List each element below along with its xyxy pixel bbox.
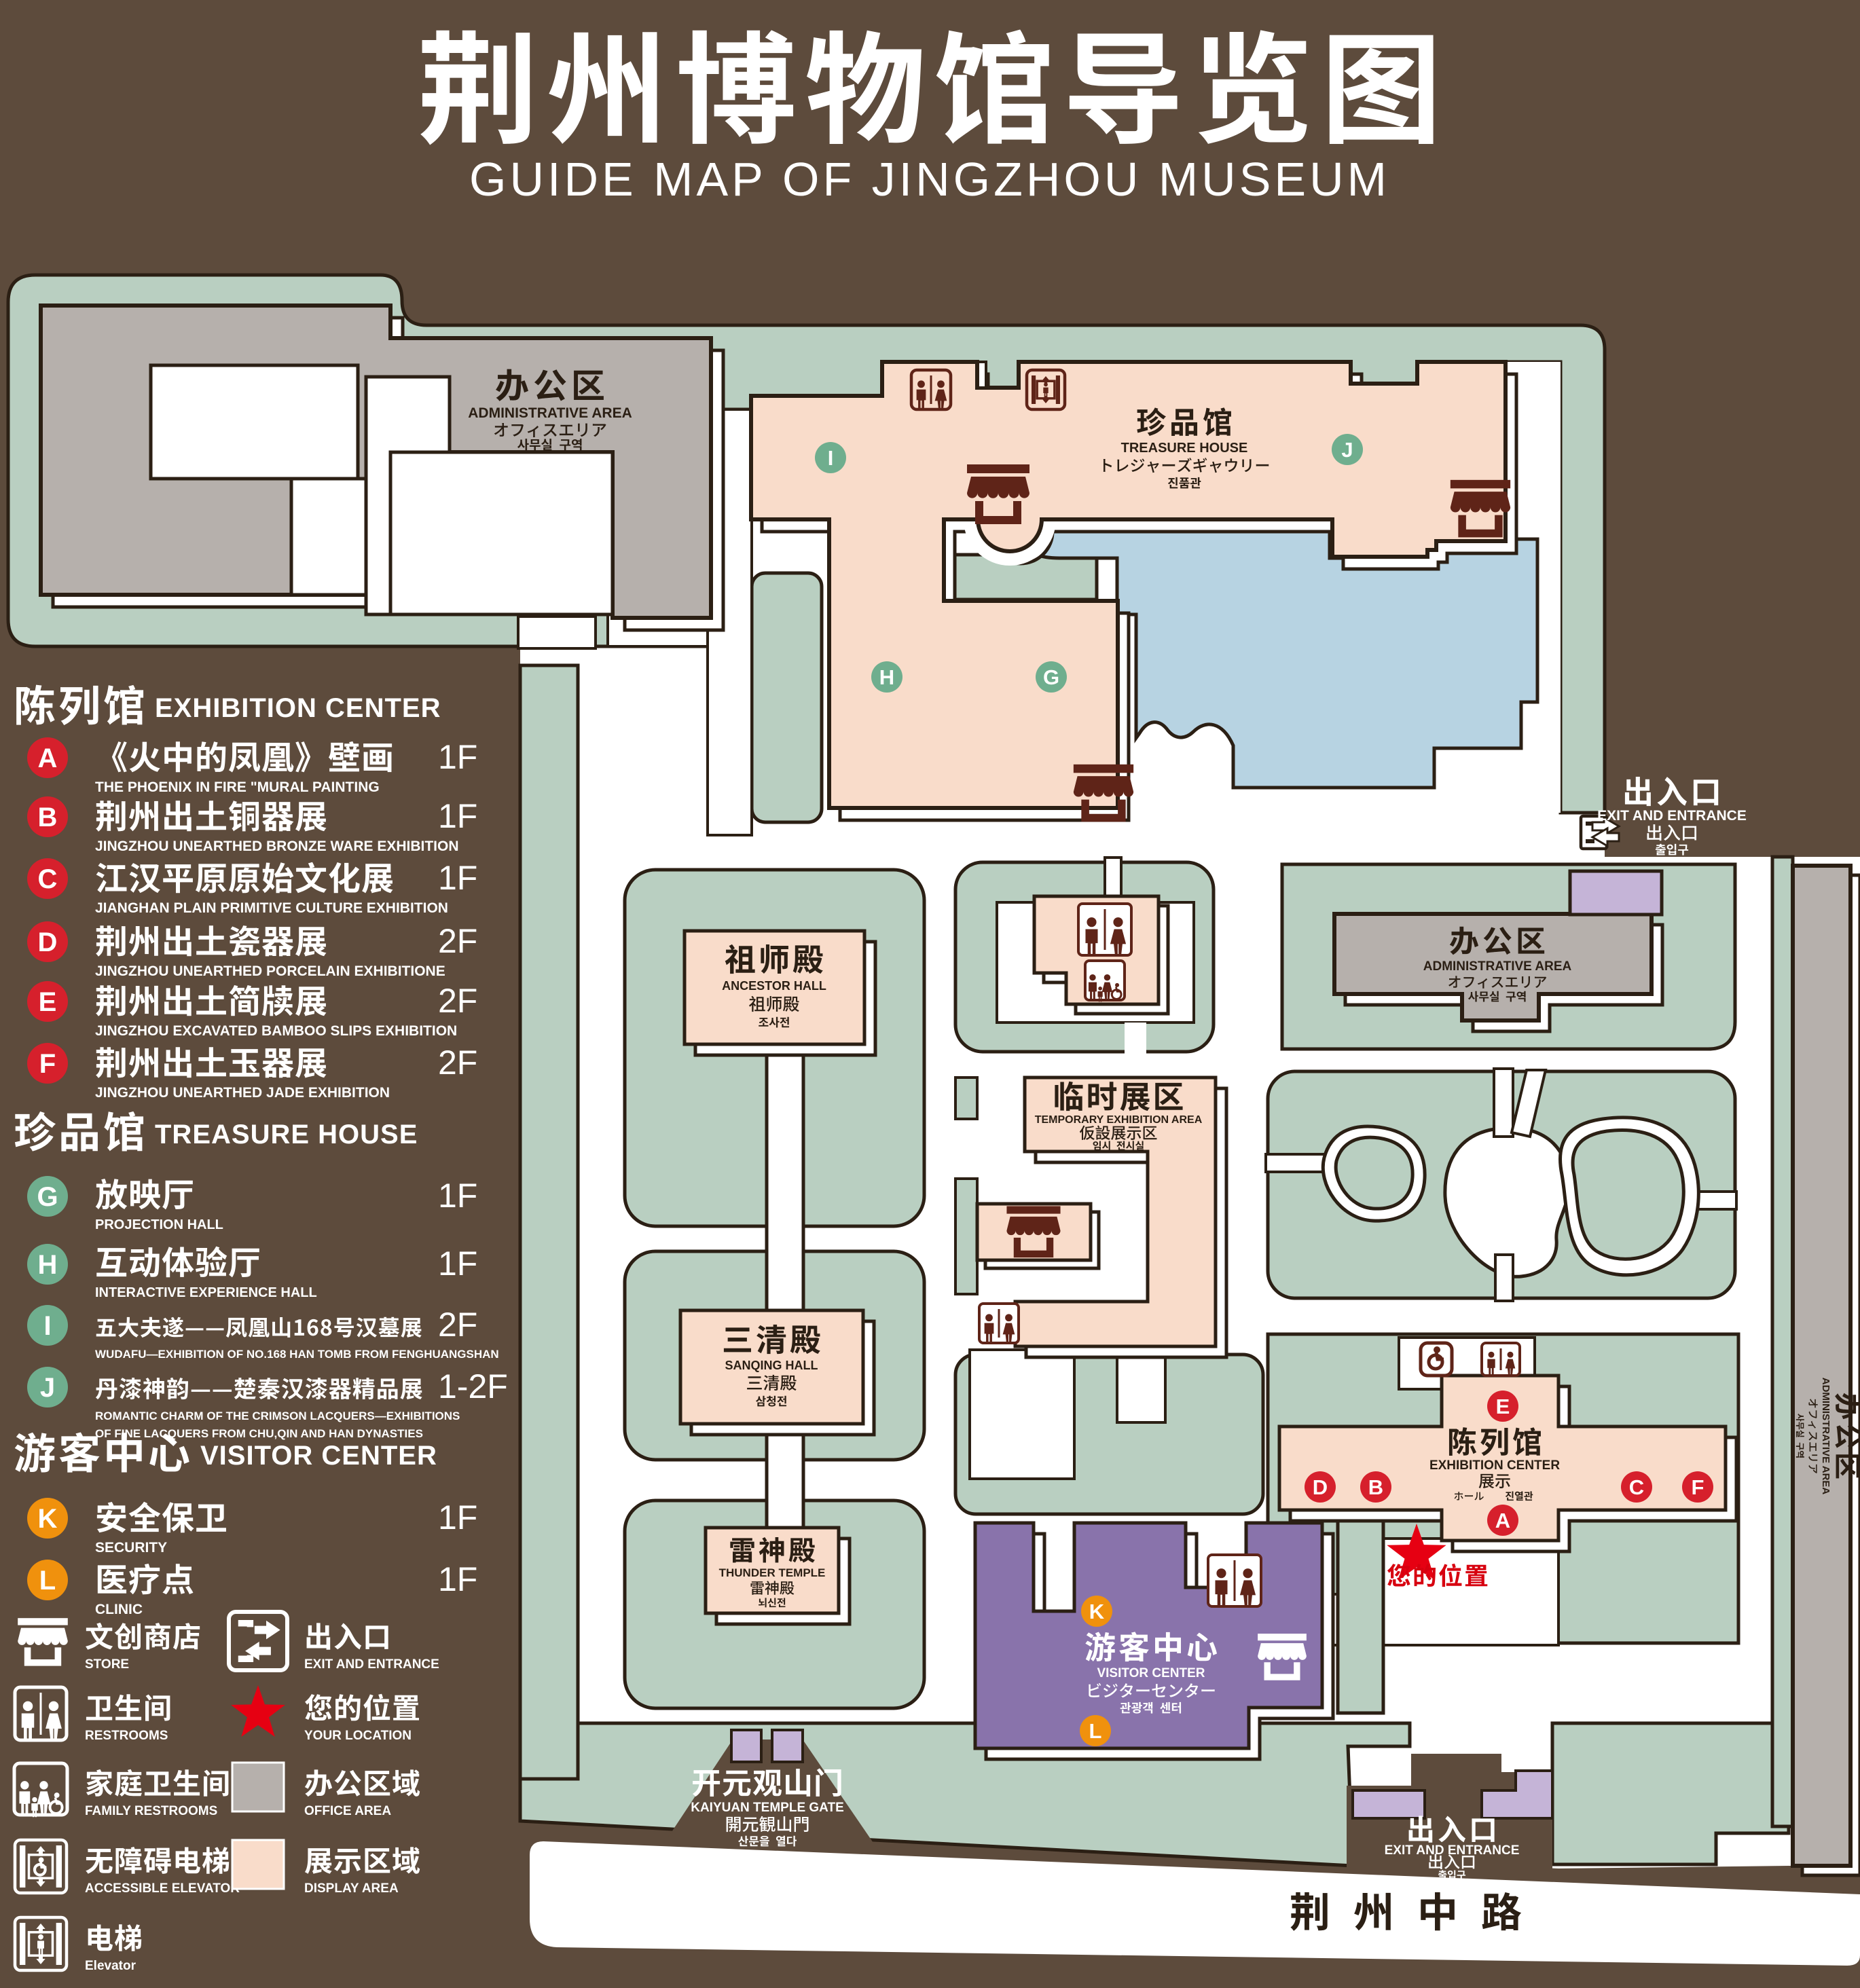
svg-text:RESTROOMS: RESTROOMS (85, 1729, 168, 1743)
svg-text:VISITOR CENTER: VISITOR CENTER (1097, 1666, 1205, 1680)
svg-text:SANQING HALL: SANQING HALL (725, 1359, 818, 1372)
svg-text:1-2F: 1-2F (438, 1367, 508, 1405)
svg-text:OFFICE AREA: OFFICE AREA (304, 1804, 391, 1818)
svg-text:TEMPORARY EXHIBITION AREA: TEMPORARY EXHIBITION AREA (1035, 1114, 1203, 1126)
svg-text:KAIYUAN TEMPLE GATE: KAIYUAN TEMPLE GATE (691, 1801, 844, 1815)
svg-text:1F: 1F (438, 1498, 477, 1536)
svg-text:ANCESTOR HALL: ANCESTOR HALL (722, 979, 826, 993)
svg-text:H: H (879, 665, 894, 689)
svg-text:ADMINISTRATIVE AREA: ADMINISTRATIVE AREA (1423, 959, 1572, 974)
svg-text:F: F (39, 1049, 56, 1079)
svg-text:SECURITY: SECURITY (95, 1540, 167, 1556)
svg-text:1F: 1F (438, 1245, 477, 1283)
svg-text:J: J (1341, 438, 1353, 462)
svg-text:OF FINE LACQUERS FROM CHU,QIN: OF FINE LACQUERS FROM CHU,QIN AND HAN DY… (95, 1427, 423, 1440)
svg-text:TREASURE HOUSE: TREASURE HOUSE (155, 1120, 418, 1149)
svg-text:B: B (38, 803, 58, 832)
svg-text:I: I (828, 446, 834, 470)
svg-text:1F: 1F (438, 859, 477, 897)
svg-text:GUIDE MAP OF JINGZHOU MUSEUM: GUIDE MAP OF JINGZHOU MUSEUM (469, 153, 1390, 206)
svg-text:EXHIBITION CENTER: EXHIBITION CENTER (1429, 1458, 1560, 1473)
svg-text:VISITOR CENTER: VISITOR CENTER (200, 1441, 437, 1471)
svg-text:H: H (38, 1250, 58, 1280)
svg-text:ADMINISTRATIVE AREA: ADMINISTRATIVE AREA (468, 405, 632, 421)
svg-text:JINGZHOU EXCAVATED BAMBOO SLIP: JINGZHOU EXCAVATED BAMBOO SLIPS EXHIBITI… (95, 1023, 457, 1039)
svg-text:B: B (1368, 1475, 1383, 1499)
svg-text:E: E (1496, 1395, 1510, 1418)
svg-text:TREASURE HOUSE: TREASURE HOUSE (1121, 441, 1248, 456)
svg-text:ACCESSIBLE ELEVATOR: ACCESSIBLE ELEVATOR (85, 1881, 240, 1896)
svg-text:J: J (40, 1373, 55, 1403)
svg-text:THUNDER TEMPLE: THUNDER TEMPLE (719, 1566, 826, 1579)
svg-text:D: D (1313, 1475, 1328, 1499)
svg-text:G: G (37, 1182, 58, 1212)
svg-text:2F: 2F (438, 1044, 477, 1082)
svg-text:THE PHOENIX IN FIRE "MURAL PAI: THE PHOENIX IN FIRE "MURAL PAINTING (95, 779, 380, 795)
svg-text:L: L (1089, 1719, 1102, 1743)
svg-text:JINGZHOU UNEARTHED JADE EXHIBI: JINGZHOU UNEARTHED JADE EXHIBITION (95, 1085, 390, 1101)
svg-text:ADMINISTRATIVE AREA: ADMINISTRATIVE AREA (1820, 1378, 1831, 1495)
svg-text:2F: 2F (438, 982, 477, 1020)
svg-text:A: A (1495, 1509, 1510, 1532)
svg-text:C: C (1629, 1475, 1644, 1499)
svg-text:DISPLAY AREA: DISPLAY AREA (304, 1881, 399, 1896)
svg-text:PROJECTION HALL: PROJECTION HALL (95, 1217, 223, 1232)
svg-text:EXIT AND ENTRANCE: EXIT AND ENTRANCE (1385, 1843, 1520, 1858)
svg-text:CLINIC: CLINIC (95, 1602, 143, 1617)
svg-text:INTERACTIVE EXPERIENCE HALL: INTERACTIVE EXPERIENCE HALL (95, 1285, 317, 1300)
svg-text:YOUR LOCATION: YOUR LOCATION (304, 1729, 412, 1743)
svg-text:2F: 2F (438, 1306, 477, 1344)
svg-text:EXIT AND ENTRANCE: EXIT AND ENTRANCE (1597, 808, 1747, 824)
svg-text:F: F (1692, 1475, 1704, 1499)
svg-text:K: K (38, 1504, 58, 1534)
svg-text:G: G (1043, 665, 1059, 689)
svg-text:FAMILY RESTROOMS: FAMILY RESTROOMS (85, 1804, 217, 1818)
svg-text:A: A (38, 743, 58, 773)
svg-text:1F: 1F (438, 1560, 477, 1598)
svg-text:L: L (39, 1566, 56, 1596)
svg-text:1F: 1F (438, 797, 477, 835)
svg-text:I: I (43, 1311, 51, 1341)
svg-text:STORE: STORE (85, 1657, 129, 1672)
svg-text:C: C (38, 864, 58, 894)
svg-text:D: D (38, 927, 58, 957)
svg-text:ROMANTIC CHARM OF THE CRIMSON: ROMANTIC CHARM OF THE CRIMSON LACQUERS—E… (95, 1410, 460, 1422)
svg-text:EXHIBITION CENTER: EXHIBITION CENTER (155, 693, 441, 723)
svg-text:1F: 1F (438, 1177, 477, 1215)
svg-text:1F: 1F (438, 738, 477, 776)
svg-text:JIANGHAN PLAIN PRIMITIVE CULTU: JIANGHAN PLAIN PRIMITIVE CULTURE EXHIBIT… (95, 900, 448, 916)
svg-text:K: K (1089, 1600, 1105, 1623)
svg-text:2F: 2F (438, 922, 477, 960)
svg-text:E: E (39, 987, 57, 1017)
svg-text:JINGZHOU UNEARTHED BRONZE WARE: JINGZHOU UNEARTHED BRONZE WARE EXHIBITIO… (95, 839, 459, 854)
svg-text:Elevator: Elevator (85, 1959, 136, 1973)
svg-text:EXIT AND ENTRANCE: EXIT AND ENTRANCE (304, 1657, 439, 1672)
svg-text:WUDAFU—EXHIBITION OF NO.168 HA: WUDAFU—EXHIBITION OF NO.168 HAN TOMB FRO… (95, 1348, 499, 1361)
svg-text:JINGZHOU UNEARTHED PORCELAIN E: JINGZHOU UNEARTHED PORCELAIN EXHIBITIONE (95, 963, 445, 979)
